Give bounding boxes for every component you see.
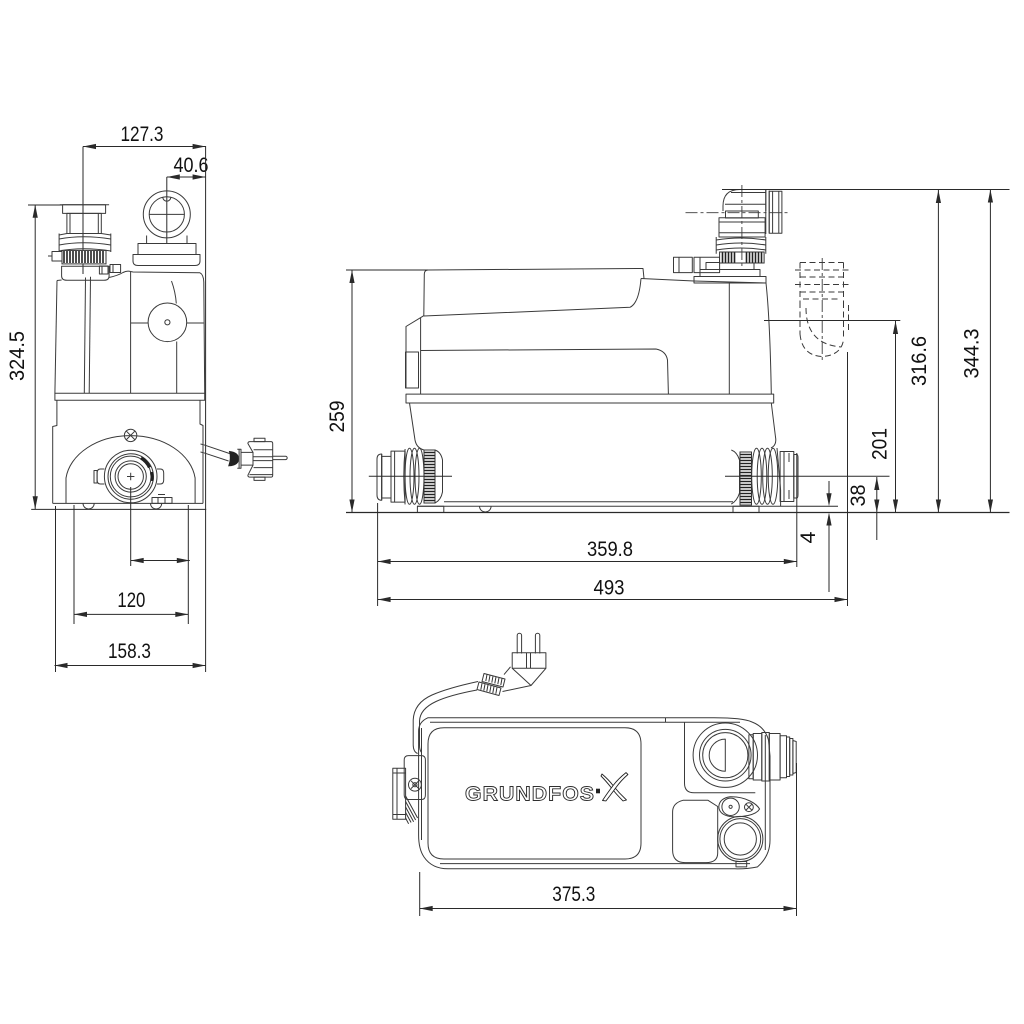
svg-text:158.3: 158.3: [108, 640, 151, 663]
svg-text:127.3: 127.3: [121, 123, 164, 146]
svg-text:4: 4: [797, 531, 820, 543]
svg-text:344.3: 344.3: [961, 329, 984, 379]
svg-text:38: 38: [847, 485, 870, 507]
svg-text:359.8: 359.8: [587, 538, 633, 561]
svg-text:GRUNDFOS: GRUNDFOS: [465, 784, 595, 806]
svg-text:375.3: 375.3: [552, 883, 595, 906]
svg-text:316.6: 316.6: [908, 336, 931, 386]
svg-text:201: 201: [869, 428, 892, 460]
svg-text:493: 493: [594, 577, 625, 600]
svg-text:324.5: 324.5: [6, 331, 29, 381]
svg-text:259: 259: [326, 401, 349, 433]
svg-text:40.6: 40.6: [174, 154, 209, 177]
svg-text:120: 120: [117, 589, 145, 612]
